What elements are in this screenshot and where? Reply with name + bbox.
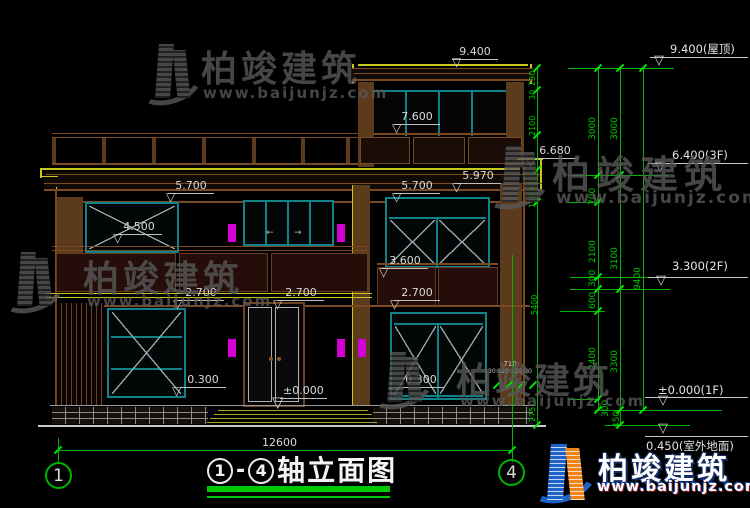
dim-value: 3100 xyxy=(610,247,620,270)
mullion xyxy=(471,92,473,136)
elev-label: 2.700 xyxy=(394,287,440,301)
slat-wall xyxy=(56,303,104,405)
elevation-marker-icon: ▽ xyxy=(392,191,401,203)
tower-panel xyxy=(413,137,465,164)
watermark-url: www.baijunjz.com xyxy=(460,392,645,410)
elevation-marker-icon: ▽ xyxy=(113,232,122,244)
footer-url: www.baijunjz.com xyxy=(597,479,750,495)
railing-post xyxy=(301,138,305,164)
slide-arrow-icon: → xyxy=(294,229,302,238)
watermark-url: www.baijunjz.com xyxy=(556,188,750,208)
mullion xyxy=(436,219,438,266)
window-pane xyxy=(439,220,485,264)
dim-value: 2100 xyxy=(528,116,538,136)
brand-logo-icon xyxy=(5,250,59,312)
watermark-url: www.baijunjz.com xyxy=(203,84,388,102)
roof-line xyxy=(352,68,533,69)
step-line xyxy=(210,418,374,419)
railing-post xyxy=(102,138,106,164)
dim-value: 3000 xyxy=(588,117,598,140)
spandrel-panel xyxy=(438,267,498,306)
wall-lamp xyxy=(358,339,366,357)
roof-line xyxy=(352,79,533,81)
tower-panel xyxy=(360,137,410,164)
brand-logo-icon xyxy=(143,42,197,104)
dim-value: 230 xyxy=(528,71,538,86)
elevation-marker-icon: ▽ xyxy=(452,181,461,193)
door-handle xyxy=(269,357,273,361)
drawing-title: 1 - 4 轴立面图 xyxy=(207,456,397,486)
wall-lamp xyxy=(228,339,236,357)
elevation-marker-icon: ▽ xyxy=(272,396,284,408)
slide-arrow-icon: ← xyxy=(266,229,274,238)
window-pane xyxy=(112,312,181,394)
elev-label: 2.700 xyxy=(278,287,324,301)
elevation-marker-icon: ▽ xyxy=(390,298,399,310)
elev-label: 0.300 xyxy=(180,374,226,388)
elevation-marker-icon: ▽ xyxy=(658,423,668,435)
dim-value: 3000 xyxy=(610,117,620,140)
axis-bubble-4: 4 xyxy=(498,459,525,486)
elev-label: 4.500 xyxy=(116,221,162,235)
brick-band xyxy=(52,407,208,424)
railing-post xyxy=(252,138,256,164)
roof-edge-line xyxy=(358,64,528,66)
railing-post xyxy=(152,138,156,164)
title-text: 轴立面图 xyxy=(277,456,397,486)
elev-label: 3.600 xyxy=(382,255,428,269)
watermark-url: www.baijunjz.com xyxy=(87,292,272,310)
wall-pier xyxy=(57,197,83,253)
ground-line xyxy=(38,425,546,427)
flag-line xyxy=(645,436,748,437)
dim-value: 450 xyxy=(612,411,622,428)
level-flag-label: 9.400(屋顶) xyxy=(670,41,735,57)
balcony-door-2f: ← → xyxy=(243,200,334,246)
step-line xyxy=(218,410,368,411)
level-flag-label: 3.300(2F) xyxy=(672,259,728,273)
wall-lamp xyxy=(337,339,345,357)
brand-logo-icon xyxy=(488,144,546,208)
dim-value: 9400 xyxy=(633,267,643,290)
elevation-marker-icon: ▽ xyxy=(166,191,175,203)
roof-line xyxy=(354,73,531,74)
railing-post xyxy=(202,138,206,164)
dim-value: 5400 xyxy=(530,295,540,315)
axis-bubble-1: 1 xyxy=(45,462,72,489)
eave-edge-line xyxy=(40,168,520,170)
flag-line xyxy=(650,57,748,58)
cad-elevation-drawing: ← → xyxy=(0,0,750,508)
elevation-marker-icon: ▽ xyxy=(452,56,461,68)
dim-value: 300 xyxy=(588,270,598,287)
dim-chain-line xyxy=(620,68,621,425)
dim-value: 600 xyxy=(588,292,598,309)
parapet-rail xyxy=(52,246,370,247)
dim-value: 2100 xyxy=(588,240,598,263)
title-separator: - xyxy=(236,458,245,484)
overall-dim-value: 12600 xyxy=(262,436,297,449)
railing-post xyxy=(52,138,56,164)
elevation-marker-icon: ▽ xyxy=(273,298,282,310)
railing-rail xyxy=(52,163,358,165)
door-leaf-line xyxy=(309,202,311,244)
elevation-marker-icon: ▽ xyxy=(654,55,664,67)
title-axis-start: 1 xyxy=(207,458,233,484)
eave-edge-line xyxy=(40,176,58,177)
brand-logo-icon xyxy=(534,442,594,504)
elevation-marker-icon: ▽ xyxy=(172,385,181,397)
wall-pier xyxy=(353,185,370,405)
step-line xyxy=(207,422,377,423)
door-leaf-line xyxy=(287,202,289,244)
title-underline-thick xyxy=(207,486,390,492)
brand-logo-icon xyxy=(374,350,430,408)
eave-line xyxy=(44,189,542,191)
elevation-marker-icon: ▽ xyxy=(392,122,401,134)
dim-value: 30 xyxy=(528,90,538,100)
elevation-marker-icon: ▽ xyxy=(658,395,668,407)
railing-rail xyxy=(52,133,358,134)
overall-dim-line xyxy=(58,450,513,451)
railing-post xyxy=(346,138,350,164)
title-underline-thin xyxy=(207,496,390,498)
door-handle xyxy=(277,357,281,361)
elevation-marker-icon: ▽ xyxy=(379,266,388,278)
wall-lamp xyxy=(337,224,345,242)
door-leaf xyxy=(248,307,272,402)
elev-label: ±0.000 xyxy=(280,385,327,399)
title-axis-end: 4 xyxy=(248,458,274,484)
step-line xyxy=(214,414,372,415)
elevation-marker-icon: ▽ xyxy=(656,275,666,287)
wall-lamp xyxy=(228,224,236,242)
dim-chain-line xyxy=(643,68,644,410)
